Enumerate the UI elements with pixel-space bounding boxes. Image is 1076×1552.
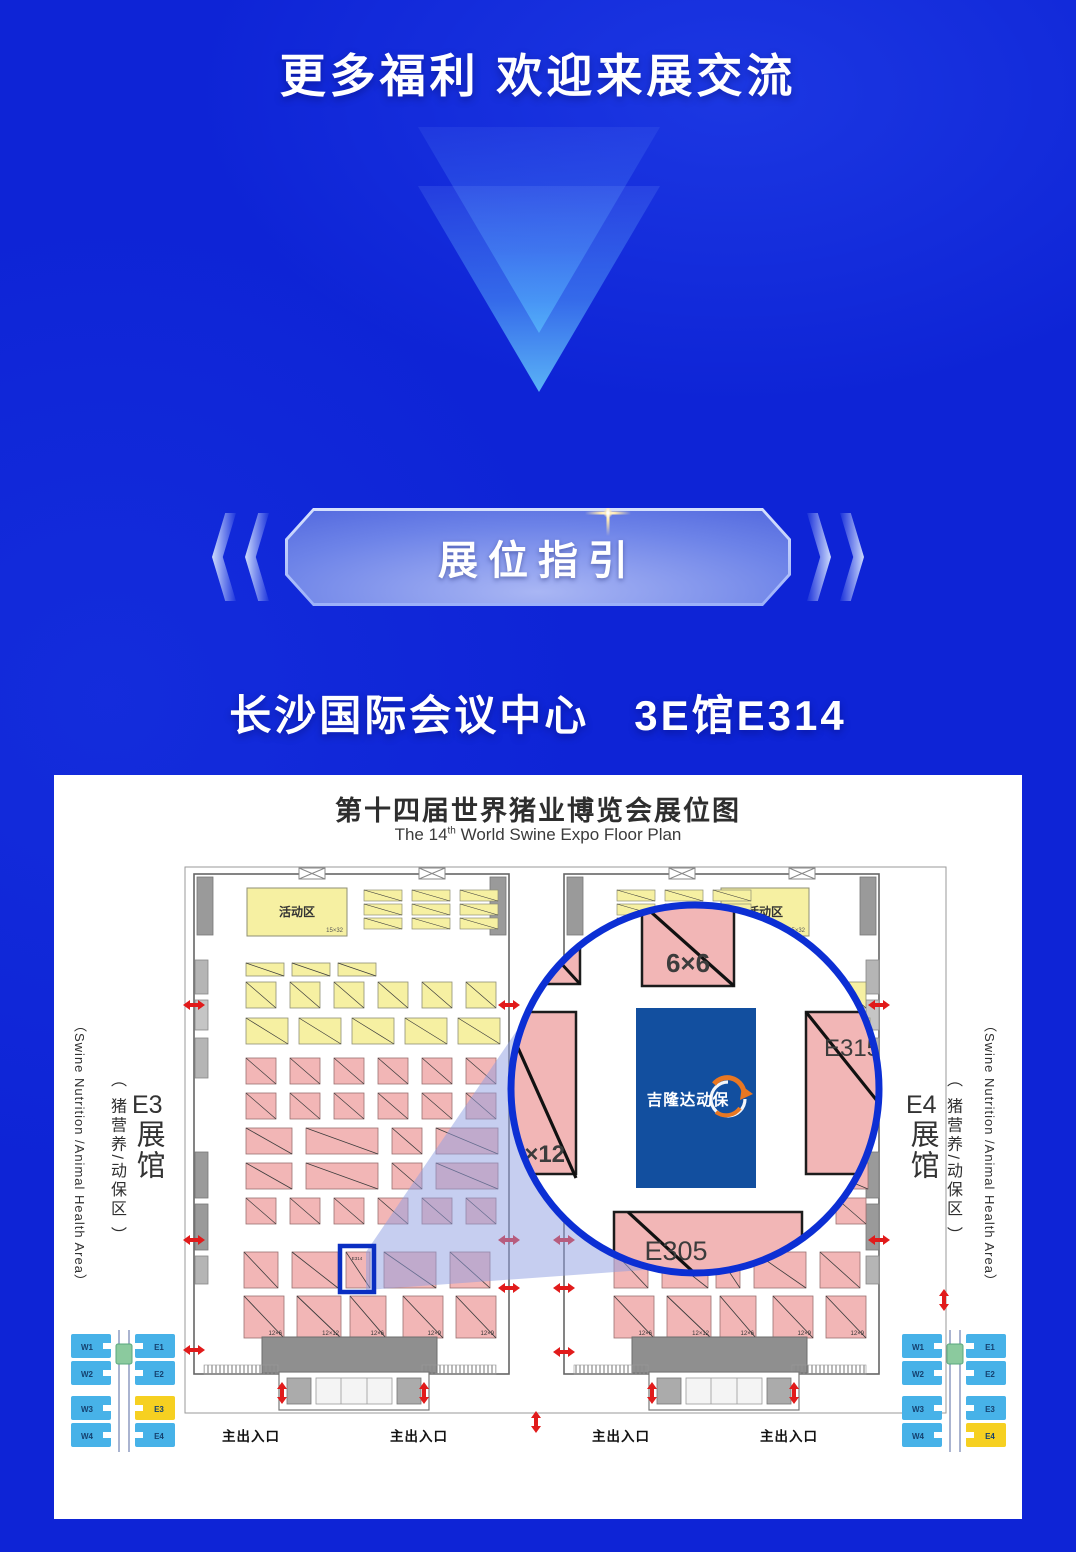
floor-plan-drawing: 活动区15×3212×612×1212×612×912×9主出入口主出入口活动区… [54,860,1022,1519]
svg-text:W2: W2 [81,1370,94,1379]
page-title: 更多福利 欢迎来展交流 [0,40,1076,106]
svg-text:12×6: 12×6 [370,1331,384,1337]
svg-text:12×9: 12×9 [427,1331,441,1337]
floor-plan-title: 第十四届世界猪业博览会展位图 [54,789,1022,828]
svg-text:主出入口: 主出入口 [222,1428,280,1444]
svg-text:12×6: 12×6 [740,1331,754,1337]
svg-text:E4: E4 [154,1432,164,1441]
svg-text:E2: E2 [985,1370,995,1379]
svg-text:E314: E314 [352,1256,363,1261]
svg-text:12×12: 12×12 [692,1331,710,1337]
svg-text:6×6: 6×6 [666,948,710,978]
chevron-left-decoration [212,513,269,601]
svg-text:E4: E4 [985,1432,995,1441]
svg-text:W1: W1 [912,1343,925,1352]
svg-text:E3: E3 [985,1405,995,1414]
svg-text:12×6: 12×6 [268,1331,282,1337]
svg-text:E2: E2 [154,1370,164,1379]
svg-text:12×9: 12×9 [480,1331,494,1337]
section-badge: 展位指引 [285,508,791,606]
svg-text:W3: W3 [912,1405,925,1414]
floor-plan-subtitle: The 14th World Swine Expo Floor Plan [54,825,1022,845]
svg-text:15×32: 15×32 [326,928,344,934]
svg-text:主出入口: 主出入口 [592,1428,650,1444]
svg-text:12×9: 12×9 [797,1331,811,1337]
svg-text:12×9: 12×9 [850,1331,864,1337]
badge-label: 展位指引 [438,528,638,586]
svg-text:主出入口: 主出入口 [390,1428,448,1444]
svg-text:W3: W3 [81,1405,94,1414]
svg-text:12×12: 12×12 [322,1331,340,1337]
svg-text:主出入口: 主出入口 [760,1428,818,1444]
svg-text:E1: E1 [985,1343,995,1352]
floor-plan-card: 第十四届世界猪业博览会展位图 The 14th World Swine Expo… [54,775,1022,1519]
svg-text:活动区: 活动区 [279,904,315,919]
chevron-right-decoration [807,513,864,601]
svg-text:W2: W2 [912,1370,925,1379]
svg-text:W1: W1 [81,1343,94,1352]
svg-text:12×6: 12×6 [638,1331,652,1337]
svg-text:E1: E1 [154,1343,164,1352]
triangle-front [418,186,660,392]
venue-booth-line: 长沙国际会议中心 3E馆E314 [0,682,1076,743]
svg-text:W4: W4 [81,1432,94,1441]
svg-text:E3: E3 [154,1405,164,1414]
svg-text:吉隆达动保: 吉隆达动保 [647,1090,730,1109]
svg-text:E305: E305 [644,1236,707,1266]
section-badge-row: 展位指引 [0,508,1076,606]
svg-text:W4: W4 [912,1432,925,1441]
